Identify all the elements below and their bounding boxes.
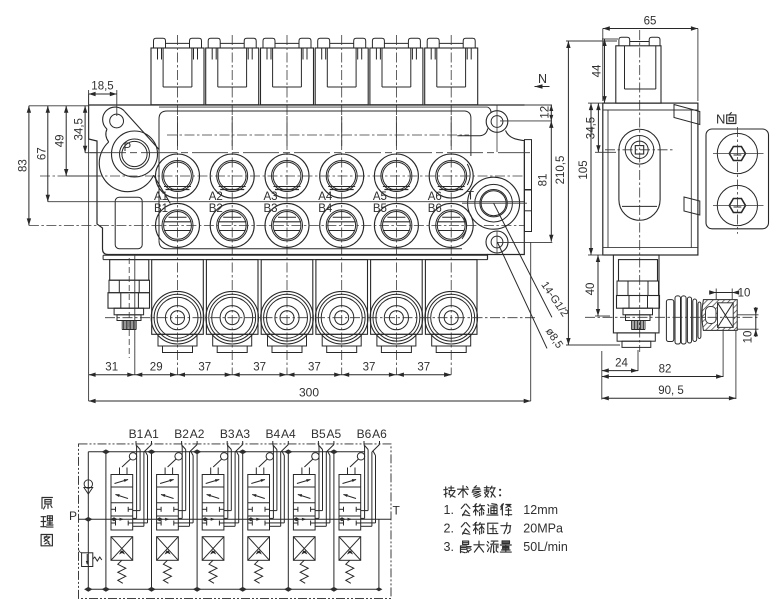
- svg-text:81: 81: [538, 174, 550, 187]
- svg-text:B2: B2: [209, 203, 223, 215]
- svg-text:A1: A1: [144, 427, 159, 441]
- svg-text:90, 5: 90, 5: [658, 385, 684, 397]
- svg-text:T: T: [467, 191, 474, 203]
- svg-text:29: 29: [150, 362, 163, 374]
- svg-text:1.: 1.: [444, 503, 454, 517]
- svg-text:24: 24: [615, 358, 628, 370]
- svg-text:37: 37: [308, 362, 321, 374]
- svg-text:50L/min: 50L/min: [523, 540, 568, 554]
- svg-text:105: 105: [578, 160, 590, 179]
- svg-text:B5: B5: [373, 203, 387, 215]
- svg-text:A5: A5: [327, 427, 342, 441]
- svg-text:65: 65: [644, 16, 657, 28]
- svg-text:P: P: [69, 509, 77, 523]
- svg-text:37: 37: [198, 362, 211, 374]
- svg-text:37: 37: [253, 362, 266, 374]
- svg-text:A3: A3: [235, 427, 250, 441]
- svg-text:10: 10: [738, 288, 751, 300]
- svg-text:300: 300: [299, 386, 319, 400]
- svg-text:P: P: [124, 142, 132, 154]
- svg-text:B3: B3: [264, 203, 278, 215]
- svg-text:20MPa: 20MPa: [523, 521, 563, 535]
- svg-text:37: 37: [417, 362, 430, 374]
- svg-text:49: 49: [55, 135, 67, 148]
- svg-text:B1: B1: [154, 203, 168, 215]
- svg-text:83: 83: [17, 159, 29, 172]
- svg-text:B5: B5: [311, 427, 326, 441]
- svg-text:N: N: [538, 72, 547, 86]
- svg-text:44: 44: [592, 64, 604, 77]
- svg-text:40: 40: [585, 283, 597, 296]
- svg-text:82: 82: [659, 364, 672, 376]
- svg-text:A2: A2: [190, 427, 205, 441]
- svg-text:B4: B4: [318, 203, 333, 215]
- svg-text:2.: 2.: [444, 521, 454, 535]
- svg-text:3.: 3.: [444, 540, 454, 554]
- svg-text:N: N: [716, 112, 725, 127]
- svg-text:67: 67: [36, 147, 48, 160]
- svg-text:B6: B6: [428, 203, 442, 215]
- svg-text:B4: B4: [265, 427, 280, 441]
- svg-text:10: 10: [743, 331, 755, 344]
- svg-text:B1: B1: [129, 427, 144, 441]
- svg-text:37: 37: [363, 362, 376, 374]
- svg-text:B2: B2: [174, 427, 189, 441]
- svg-text:34,5: 34,5: [74, 118, 86, 140]
- svg-text:12mm: 12mm: [523, 503, 558, 517]
- svg-text:A4: A4: [281, 427, 296, 441]
- svg-text:T: T: [393, 504, 401, 518]
- svg-text:210,5: 210,5: [555, 156, 567, 185]
- svg-text:31: 31: [105, 362, 118, 374]
- svg-text:B3: B3: [220, 427, 235, 441]
- svg-text:18,5: 18,5: [91, 81, 113, 93]
- svg-text:A6: A6: [372, 427, 387, 441]
- svg-text:B6: B6: [357, 427, 372, 441]
- svg-text:12: 12: [539, 106, 551, 119]
